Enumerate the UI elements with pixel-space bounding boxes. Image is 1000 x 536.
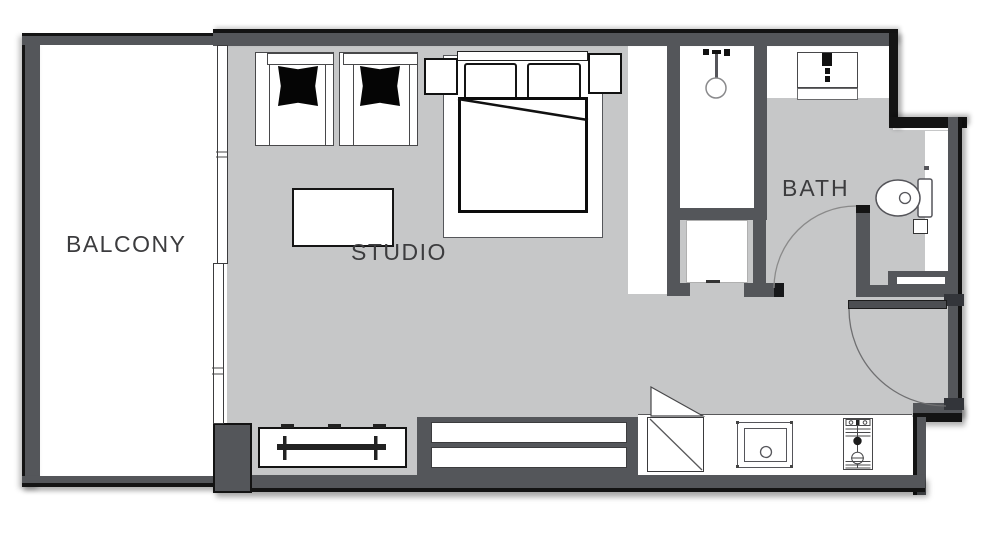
entry-frame-cap-bottom xyxy=(944,398,964,410)
wall-bathdoor-right xyxy=(856,205,870,297)
armchair-cushion xyxy=(360,66,400,106)
column xyxy=(213,423,252,493)
bed-pillow-left xyxy=(464,63,517,100)
bed-headboard xyxy=(457,51,588,61)
balcony-wall-top xyxy=(22,33,218,45)
nightstand-right xyxy=(588,53,622,94)
armchair-right xyxy=(339,52,418,146)
wardrobe-door-top xyxy=(431,422,627,443)
studio-label: STUDIO xyxy=(351,239,447,266)
wall-bath-bottom xyxy=(856,285,950,297)
bed-mattress xyxy=(458,97,588,213)
wall-closet-stub-left xyxy=(667,283,690,296)
wall-top xyxy=(213,29,898,46)
nightstand-left xyxy=(424,58,458,95)
refrigerator xyxy=(647,417,704,472)
cooktop xyxy=(843,418,873,470)
linen-closet xyxy=(686,220,748,283)
entry-door-leaf xyxy=(848,300,947,309)
wall-shower-left xyxy=(667,45,680,296)
vanity-sink xyxy=(797,52,858,88)
wall-shower-bottom xyxy=(667,208,767,220)
armchair-left xyxy=(255,52,334,146)
wall-shower-right xyxy=(754,45,767,220)
wall-bath-right-upper xyxy=(889,33,898,128)
armchair-arm-left xyxy=(353,65,354,145)
floor-plan: BALCONY STUDIO BATH xyxy=(0,0,1000,536)
tv-console xyxy=(258,427,407,468)
entry-frame-cap-top xyxy=(944,294,964,306)
sliding-door-panel-lower xyxy=(213,263,224,424)
armchair-arm-right xyxy=(409,65,410,145)
toilet-alcove xyxy=(925,131,948,271)
wall-bathdoor-right-cap xyxy=(856,205,870,213)
bed-pillow-right xyxy=(527,63,581,100)
wardrobe-door-bottom xyxy=(431,447,627,468)
bath-niche-slit xyxy=(897,277,945,284)
shower-interior xyxy=(680,45,754,208)
armchair-back xyxy=(267,53,334,65)
balcony-label: BALCONY xyxy=(66,231,186,258)
wall-bottom xyxy=(213,475,925,492)
balcony-wall-left xyxy=(22,33,40,486)
bath-label: BATH xyxy=(782,175,850,202)
armchair-arm-right xyxy=(325,65,326,145)
wall-closet-right xyxy=(753,220,766,283)
closet-strip xyxy=(628,45,667,294)
wall-bathdoor-stub-cap xyxy=(774,283,784,297)
balcony-wall-bottom xyxy=(22,476,218,487)
armchair-back xyxy=(343,53,418,65)
sliding-door-panel-upper xyxy=(217,45,228,264)
kitchen-sink-basin xyxy=(744,428,787,462)
wall-right-outer xyxy=(948,117,962,417)
armchair-arm-left xyxy=(269,65,270,145)
toilet-paper-holder xyxy=(913,219,928,234)
vanity-base xyxy=(797,88,858,100)
armchair-cushion xyxy=(278,66,318,106)
